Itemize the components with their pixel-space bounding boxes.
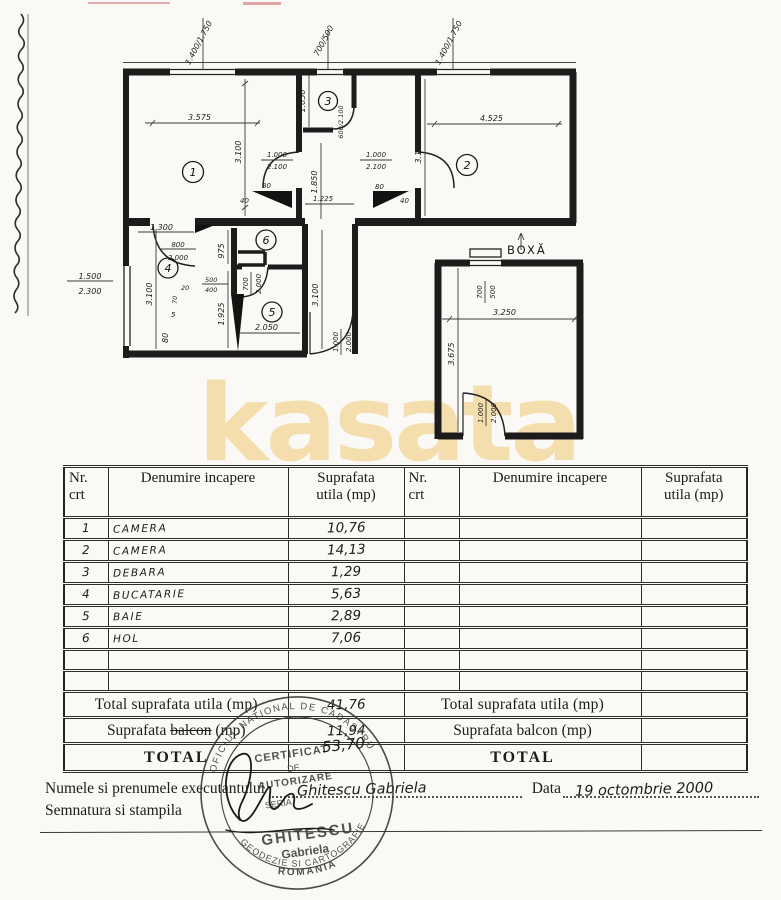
room-area-table: Nr.crt Denumire incapere Suprafatautila … — [63, 465, 748, 773]
scan-edge-artifact — [12, 12, 38, 322]
row-area: 2,89 — [288, 606, 404, 628]
door-label-room5: 700 2.000 — [242, 272, 263, 296]
row-area: 1,29 — [288, 562, 404, 584]
row-nr: 1 — [64, 518, 108, 540]
door-label-entry: 1.000 2.000 — [332, 329, 353, 355]
row-area: 14,13 — [288, 540, 404, 562]
svg-text:800: 800 — [171, 241, 185, 249]
svg-text:1.000: 1.000 — [332, 331, 340, 352]
dim-niche-5: 5 — [171, 311, 176, 319]
room-number-1: 1 — [190, 166, 197, 179]
row-name: BUCATARIE — [108, 584, 288, 606]
header-suprafata: Suprafatautila (mp) — [288, 467, 404, 518]
door-label-room1: 1.000 2.100 — [267, 151, 288, 171]
header-denumire: Denumire incapere — [108, 467, 288, 518]
total-utila-row: Total suprafata utila (mp) 41,76 Total s… — [64, 692, 747, 718]
handwritten-signature — [212, 742, 352, 842]
window-label-top-right: 1.400/1.750 — [433, 19, 464, 66]
window-label-boxa: 700 500 — [476, 281, 497, 303]
table-row: 4 BUCATARIE 5,63 — [64, 584, 747, 606]
table-row: 1 CAMERA 10,76 — [64, 518, 747, 540]
dim-boxa-height: 3.675 — [447, 343, 456, 366]
dim-niche-500: 500 — [205, 276, 217, 284]
room-number-4: 4 — [165, 262, 172, 275]
table-row-empty — [64, 650, 747, 671]
dim-bath-height: 1.925 — [217, 303, 226, 326]
svg-text:2.000: 2.000 — [490, 402, 498, 423]
svg-text:2.300: 2.300 — [79, 287, 102, 296]
dim-room2-height: 3.125 — [414, 141, 423, 164]
dim-niche-20: 20 — [181, 284, 189, 292]
date-dotted-line: 19 octombrie 2000 — [563, 778, 759, 798]
header-suprafata-2: Suprafatautila (mp) — [641, 467, 747, 518]
dim-hall6-height: 975 — [217, 243, 226, 258]
door-label-boxa: 1.000 2.000 — [477, 400, 498, 426]
dim-40-left: 40 — [240, 197, 249, 205]
header-denumire-2: Denumire incapere — [459, 467, 641, 518]
room-number-5: 5 — [269, 306, 276, 319]
grand-total-row: TOTAL TOTAL — [64, 744, 747, 772]
date-label: Data — [532, 780, 561, 798]
row-name: CAMERA — [108, 518, 288, 540]
dim-bath-width: 2.050 — [255, 323, 278, 332]
balcon-label-2: Suprafata balcon (mp) — [404, 718, 641, 744]
dim-boxa-width: 3.250 — [493, 308, 516, 317]
dim-niche-70: 70 — [171, 296, 179, 304]
executant-line: Numele si prenumele executantului Ghites… — [45, 776, 761, 798]
svg-text:2.000: 2.000 — [255, 273, 263, 294]
door-arcs — [153, 108, 505, 436]
row-name: BAIE — [108, 606, 288, 628]
window-label-left: 1.500 2.300 — [79, 272, 102, 296]
window-label-top-left: 1.400/1.750 — [183, 19, 214, 66]
dim-room2-width: 4.525 — [480, 114, 503, 123]
svg-text:1.500: 1.500 — [79, 272, 102, 281]
dim-hall-height: 1.850 — [310, 171, 319, 194]
svg-text:700: 700 — [476, 285, 484, 299]
row-area: 10,76 — [288, 518, 404, 540]
signature-line: Semnatura si stampila — [45, 798, 761, 820]
row-name: HOL — [108, 628, 288, 650]
svg-text:1.000: 1.000 — [267, 151, 288, 159]
header-nr-crt-2: Nr.crt — [404, 467, 459, 518]
row-nr: 3 — [64, 562, 108, 584]
floor-plan-drawing: 3.575 3.100 4.525 3.125 1.050 1.850 1.22… — [55, 2, 765, 460]
row-nr: 6 — [64, 628, 108, 650]
dim-80-left: 80 — [262, 182, 271, 190]
svg-text:1.000: 1.000 — [366, 151, 387, 159]
window-label-top-mid: 700/500 — [312, 24, 336, 58]
signature-label: Semnatura si stampila — [45, 802, 182, 820]
dim-corridor-height: 3.100 — [311, 284, 320, 307]
row-area: 7,06 — [288, 628, 404, 650]
svg-text:2.100: 2.100 — [366, 163, 387, 171]
room-number-3: 3 — [325, 95, 332, 108]
row-name: DEBARA — [108, 562, 288, 584]
boxa-walls — [435, 263, 583, 439]
svg-text:700: 700 — [242, 277, 250, 291]
svg-text:2.000: 2.000 — [345, 331, 353, 352]
dim-niche-400: 400 — [205, 286, 217, 294]
table-row: 5 BAIE 2,89 — [64, 606, 747, 628]
table-row-empty — [64, 671, 747, 692]
room-number-6: 6 — [263, 234, 270, 247]
dim-40-right: 40 — [400, 197, 409, 205]
row-nr: 2 — [64, 540, 108, 562]
table-row: 6 HOL 7,06 — [64, 628, 747, 650]
dim-80-right: 80 — [375, 183, 384, 191]
dim-room1-height: 3.100 — [234, 141, 243, 164]
grand-total-label-2: TOTAL — [404, 744, 641, 772]
boxa-label: BOXĂ — [507, 242, 547, 257]
room-number-2: 2 — [464, 159, 471, 172]
door-label-room3: 600/2.100 — [337, 105, 345, 138]
dim-left-height: 3.100 — [145, 283, 154, 306]
scanned-cadastral-sheet: kasata — [0, 0, 781, 900]
svg-text:500: 500 — [489, 285, 497, 299]
svg-text:1.000: 1.000 — [477, 402, 485, 423]
balcon-row: Suprafata balcon (mp) BOXA 11,94 Suprafa… — [64, 718, 747, 744]
dim-room3-height: 1.050 — [298, 90, 307, 113]
svg-text:2.100: 2.100 — [267, 163, 288, 171]
total-utila-label-2: Total suprafata utila (mp) — [404, 692, 641, 718]
table-header-row: Nr.crt Denumire incapere Suprafatautila … — [64, 467, 747, 518]
table-row: 3 DEBARA 1,29 — [64, 562, 747, 584]
header-nr-crt: Nr.crt — [64, 467, 108, 518]
footer-block: Numele si prenumele executantului Ghites… — [45, 776, 761, 820]
row-area: 5,63 — [288, 584, 404, 606]
row-nr: 5 — [64, 606, 108, 628]
dim-room1-width: 3.575 — [188, 113, 211, 122]
dim-niche-80: 80 — [161, 333, 170, 343]
row-nr: 4 — [64, 584, 108, 606]
dim-kitchen-top: 1.300 — [150, 223, 173, 232]
dim-corridor-width: 1.225 — [313, 195, 334, 203]
door-label-room2: 1.000 2.100 — [366, 151, 387, 171]
date-handwritten: 19 octombrie 2000 — [575, 780, 714, 800]
table-row: 2 CAMERA 14,13 — [64, 540, 747, 562]
row-name: CAMERA — [108, 540, 288, 562]
